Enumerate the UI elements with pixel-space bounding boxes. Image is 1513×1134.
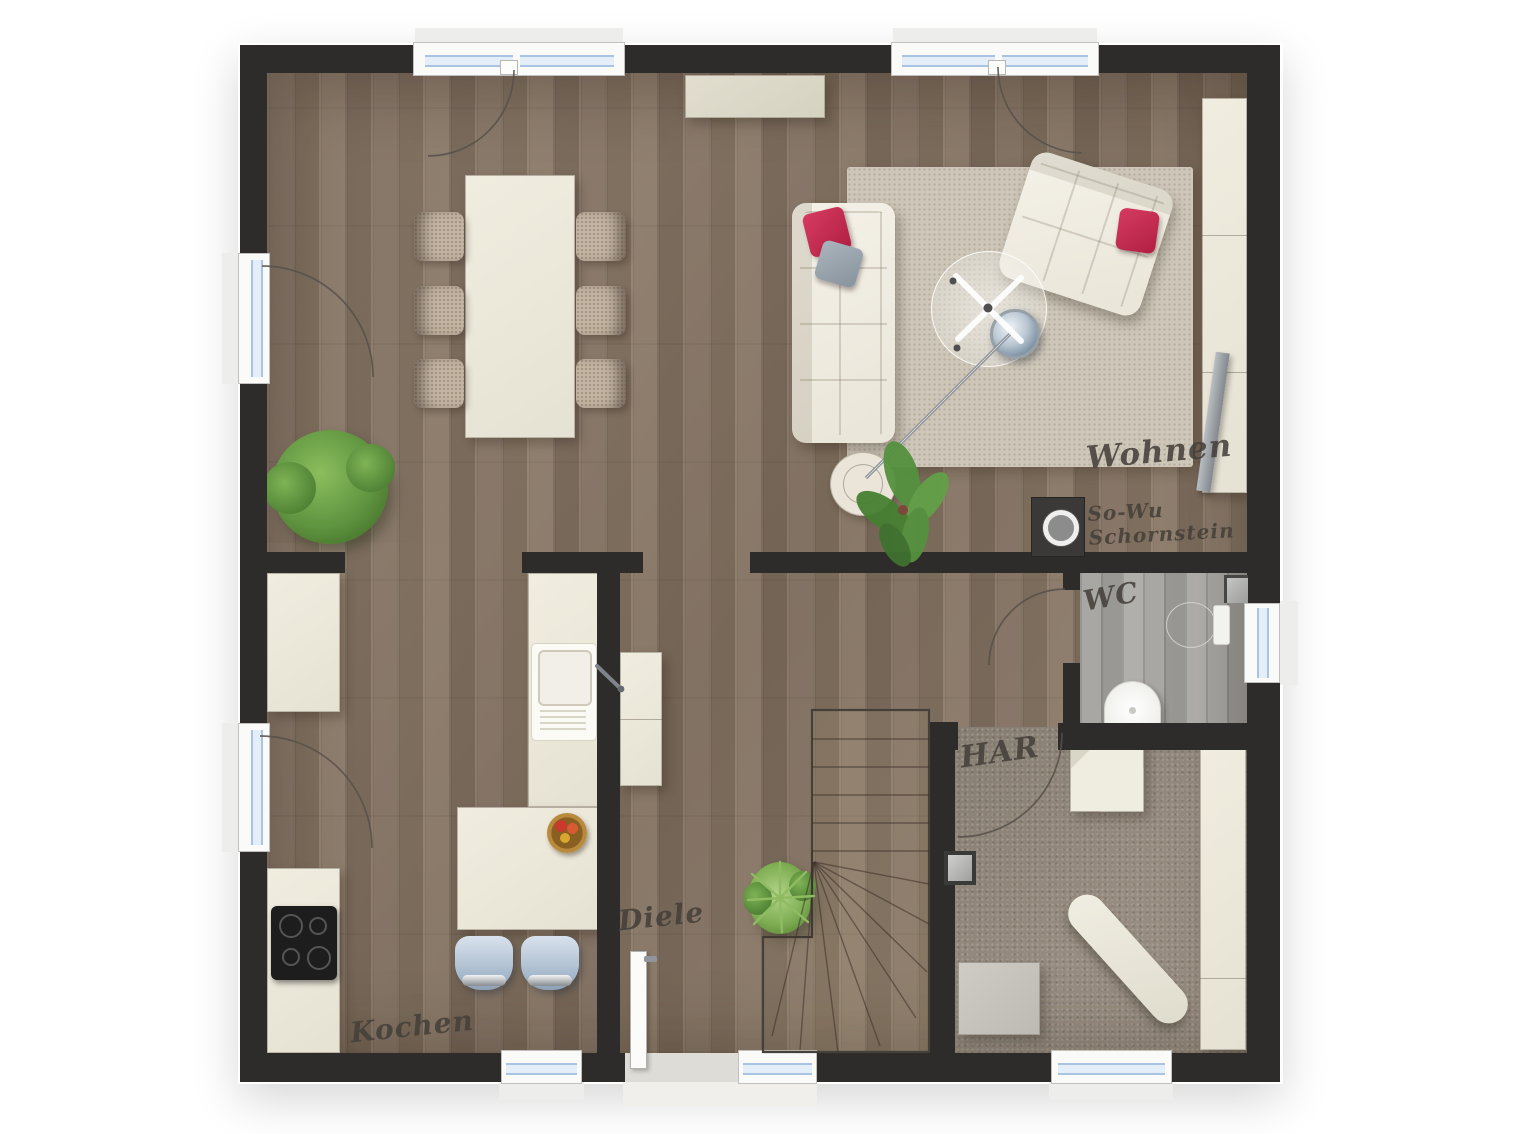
fruit bbox=[555, 820, 567, 832]
dining-chair bbox=[576, 212, 626, 261]
har-window bbox=[1051, 1050, 1172, 1084]
window bbox=[413, 42, 625, 76]
chimney-flue-icon bbox=[1043, 510, 1079, 546]
wall bbox=[815, 1053, 1053, 1082]
cabinet-har bbox=[1200, 735, 1246, 1050]
dining-chair bbox=[414, 359, 464, 408]
annotation-schornstein: So-Wu Schornstein bbox=[1087, 494, 1235, 550]
burner-icon bbox=[309, 917, 327, 935]
exterior-sill bbox=[1280, 601, 1298, 685]
wall bbox=[623, 45, 893, 73]
sink-drainboard bbox=[540, 708, 586, 734]
fruit-bowl bbox=[547, 813, 587, 853]
wall bbox=[1063, 573, 1080, 590]
bar-stool bbox=[521, 936, 579, 990]
wall bbox=[580, 1053, 625, 1082]
stair-wall bbox=[930, 722, 955, 1053]
storage-box-gray bbox=[958, 962, 1040, 1035]
fruit bbox=[560, 833, 570, 843]
wc-window bbox=[1244, 603, 1280, 683]
fruit bbox=[567, 823, 578, 834]
burner-icon bbox=[282, 948, 300, 966]
wall bbox=[1170, 1053, 1280, 1082]
sideboard-top bbox=[685, 75, 825, 118]
burner-icon bbox=[279, 914, 303, 938]
meter-box bbox=[944, 851, 976, 885]
entry-step bbox=[623, 1082, 817, 1106]
wall bbox=[750, 552, 1247, 573]
arc-lamp-dome bbox=[990, 309, 1040, 359]
wall bbox=[1063, 663, 1080, 725]
toilet-tank bbox=[1213, 605, 1230, 645]
window-glazing bbox=[506, 1063, 577, 1075]
wc-shelf bbox=[1224, 575, 1248, 603]
door-handle bbox=[644, 956, 657, 962]
dining-chair bbox=[576, 286, 626, 335]
dining-chair bbox=[414, 212, 464, 261]
toilet-bowl bbox=[1166, 602, 1216, 648]
sideboard-seam bbox=[1202, 235, 1247, 236]
wall bbox=[240, 1053, 503, 1082]
wall bbox=[597, 573, 620, 1053]
bar-stool bbox=[455, 936, 513, 990]
floor-plan: Wohnen Kochen Diele WC HAR So-Wu Schorns… bbox=[0, 0, 1513, 1134]
window-glazing bbox=[1058, 1063, 1165, 1075]
window-glazing bbox=[251, 260, 263, 376]
wall bbox=[1247, 45, 1280, 608]
sink-basin bbox=[538, 650, 592, 706]
exterior-sill bbox=[499, 1082, 584, 1100]
exterior-sill bbox=[1049, 1082, 1173, 1100]
wardrobe-seam bbox=[620, 719, 662, 720]
entry-door-leaf bbox=[630, 951, 647, 1069]
burner-icon bbox=[307, 946, 331, 970]
window-glazing bbox=[743, 1063, 812, 1075]
wall bbox=[522, 552, 643, 573]
door-hinge-mark bbox=[988, 60, 1006, 75]
arc-lamp-base bbox=[830, 452, 896, 516]
door-hinge-mark bbox=[500, 60, 518, 75]
wall bbox=[240, 850, 267, 1082]
wall bbox=[1247, 680, 1280, 1082]
wall bbox=[1058, 723, 1247, 750]
plant bbox=[272, 430, 388, 544]
cabinet-seam bbox=[1200, 978, 1246, 979]
wall bbox=[240, 45, 267, 255]
terrace-door-window bbox=[238, 253, 270, 384]
toilet bbox=[1166, 602, 1230, 648]
dining-table bbox=[465, 175, 575, 438]
kitchen-window bbox=[501, 1050, 582, 1084]
chimney-block bbox=[1031, 497, 1085, 557]
entry-sidelight-window bbox=[738, 1050, 817, 1084]
red-pillow bbox=[1115, 207, 1160, 254]
window-glazing bbox=[1257, 608, 1269, 678]
plant bbox=[748, 862, 812, 934]
dining-chair bbox=[414, 286, 464, 335]
kitchen-sink bbox=[531, 643, 597, 741]
dining-chair bbox=[576, 359, 626, 408]
terrace-door-window bbox=[238, 723, 270, 852]
window-glazing bbox=[251, 730, 263, 844]
sideboard-kitchen bbox=[267, 573, 340, 712]
wall bbox=[258, 552, 345, 573]
cooktop bbox=[271, 906, 337, 980]
